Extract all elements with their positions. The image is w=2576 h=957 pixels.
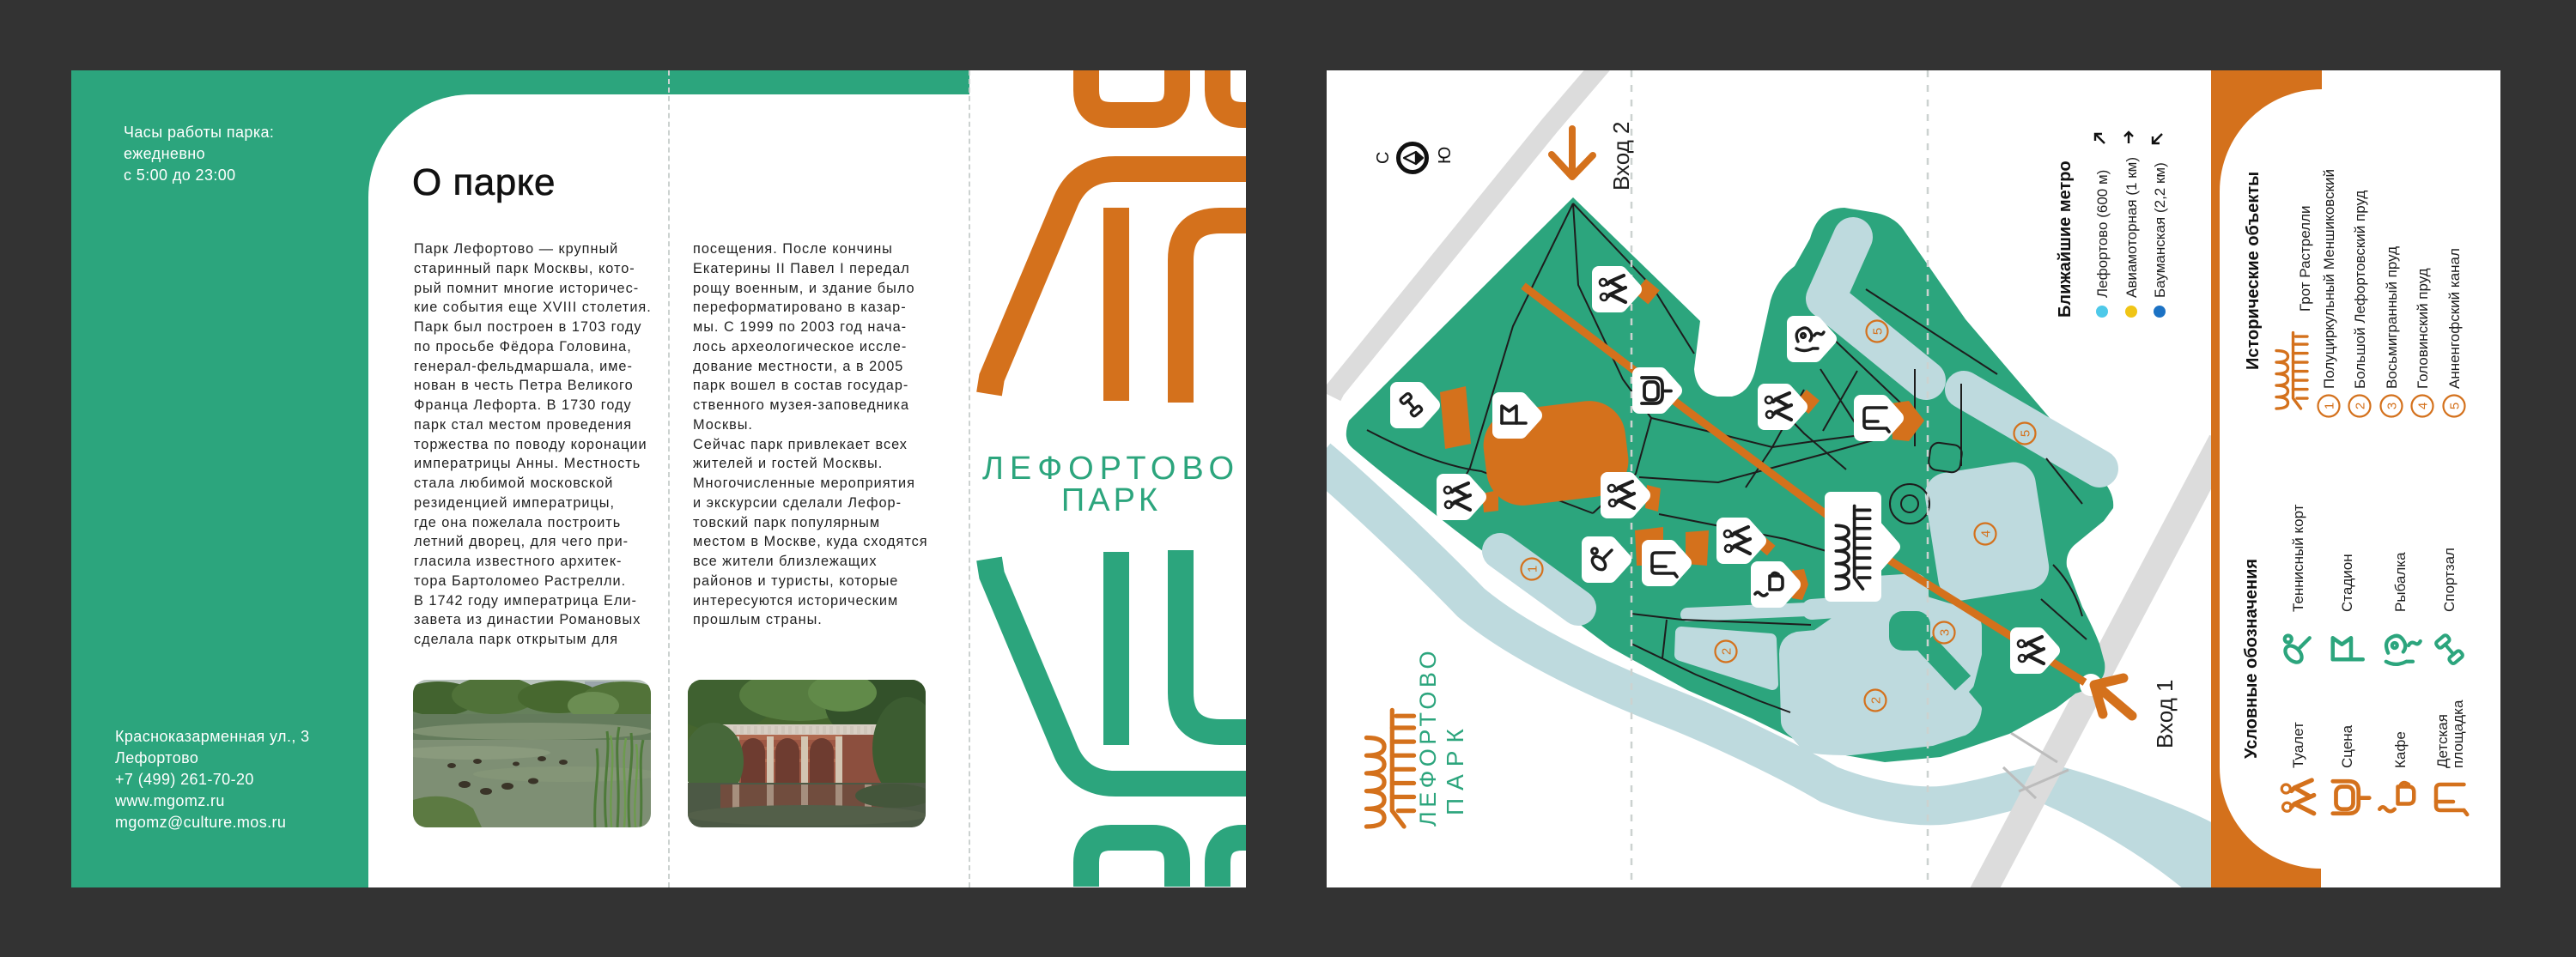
svg-text:5: 5 bbox=[2019, 430, 2033, 437]
svg-text:Полуциркульный Меншиковский: Полуциркульный Меншиковский bbox=[2321, 169, 2337, 389]
svg-text:3: 3 bbox=[1938, 629, 1953, 636]
svg-text:Вход 1: Вход 1 bbox=[2152, 679, 2178, 748]
svg-text:Головинский пруд: Головинский пруд bbox=[2415, 268, 2431, 389]
svg-text:3: 3 bbox=[2385, 403, 2400, 409]
svg-text:2: 2 bbox=[1720, 648, 1735, 655]
svg-text:Исторические объекты: Исторические объекты bbox=[2244, 172, 2263, 370]
svg-text:Стадион: Стадион bbox=[2339, 554, 2355, 612]
svg-text:Детская: Детская bbox=[2434, 714, 2451, 768]
svg-text:Ю: Ю bbox=[1436, 147, 1455, 164]
svg-text:4: 4 bbox=[1979, 530, 1994, 537]
svg-text:С: С bbox=[1374, 152, 1393, 164]
svg-text:2: 2 bbox=[1869, 697, 1884, 704]
svg-text:5: 5 bbox=[2448, 403, 2463, 409]
svg-text:ЛЕФОРТОВО: ЛЕФОРТОВО bbox=[982, 451, 1240, 487]
svg-text:Сцена: Сцена bbox=[2339, 724, 2355, 768]
svg-text:ЛЕФОРТОВО: ЛЕФОРТОВО bbox=[1415, 647, 1441, 827]
svg-text:Кафе: Кафе bbox=[2392, 731, 2409, 768]
svg-text:Анненгофский канал: Анненгофский канал bbox=[2446, 248, 2463, 389]
svg-text:Лефортово (600 м): Лефортово (600 м) bbox=[2094, 170, 2111, 298]
svg-text:Восьмигранный пруд: Восьмигранный пруд bbox=[2384, 246, 2400, 389]
svg-text:Теннисный корт: Теннисный корт bbox=[2290, 504, 2306, 612]
svg-text:Большой Лефортовский пруд: Большой Лефортовский пруд bbox=[2352, 191, 2368, 389]
svg-text:1: 1 bbox=[1526, 566, 1540, 572]
svg-text:Туалет: Туалет bbox=[2290, 722, 2306, 768]
svg-text:5: 5 bbox=[1871, 328, 1886, 335]
svg-text:Ближайшие метро: Ближайшие метро bbox=[2056, 161, 2075, 318]
svg-text:площадка: площадка bbox=[2450, 700, 2466, 768]
svg-text:Авиамоторная (1 км): Авиамоторная (1 км) bbox=[2123, 157, 2140, 298]
svg-text:Вход 2: Вход 2 bbox=[1608, 121, 1634, 191]
svg-text:Бауманская (2,2 км): Бауманская (2,2 км) bbox=[2152, 162, 2168, 298]
svg-text:Грот Растрелли: Грот Растрелли bbox=[2297, 206, 2313, 312]
svg-text:Спортзал: Спортзал bbox=[2441, 548, 2458, 612]
svg-text:2: 2 bbox=[2354, 403, 2368, 409]
svg-text:Рыбалка: Рыбалка bbox=[2392, 552, 2409, 612]
svg-text:ПАРК: ПАРК bbox=[1061, 482, 1161, 518]
svg-text:1: 1 bbox=[2323, 403, 2337, 409]
svg-text:ПАРК: ПАРК bbox=[1442, 721, 1468, 815]
svg-text:4: 4 bbox=[2416, 403, 2431, 409]
svg-text:Условные обозначения: Условные обозначения bbox=[2242, 559, 2261, 759]
